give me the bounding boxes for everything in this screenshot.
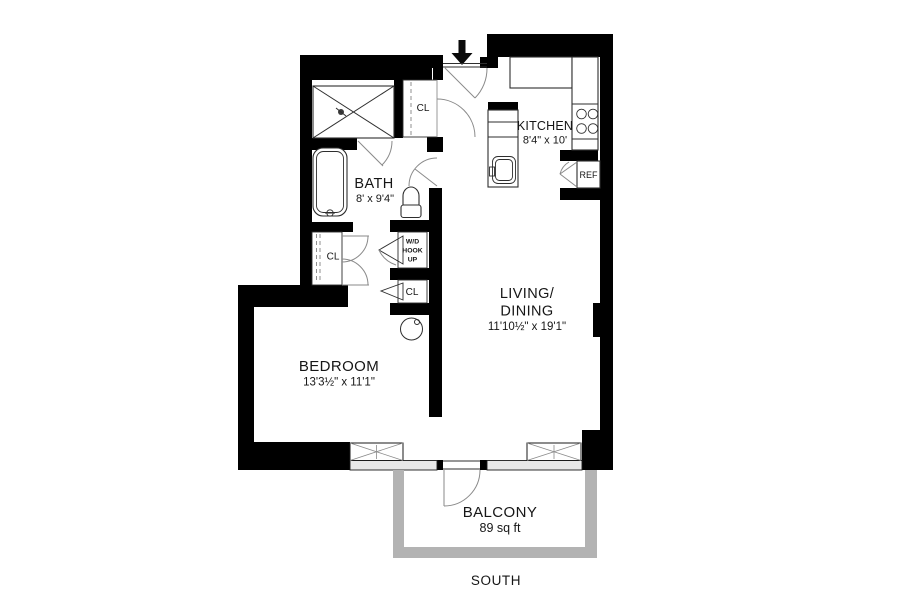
closet-french-door-swing-arc bbox=[342, 236, 368, 262]
balcony: BALCONY 89 sq ft bbox=[393, 461, 597, 558]
wall-ref-top bbox=[560, 150, 598, 161]
balcony-rail-right bbox=[585, 470, 597, 558]
kitchen-dims: 8'4" x 10' bbox=[523, 135, 567, 147]
wall-shower-closet-divider bbox=[394, 78, 403, 138]
entry-closet-door-swing-arc bbox=[437, 99, 475, 137]
compass-direction-label: SOUTH bbox=[471, 573, 521, 588]
entry-closet: CL bbox=[403, 80, 475, 137]
hall-closet-label: CL bbox=[406, 287, 419, 298]
bath-label: BATH bbox=[354, 176, 393, 192]
balcony-rail-left bbox=[393, 470, 404, 558]
wd-label-line2: HOOK bbox=[402, 248, 422, 255]
wall-cl-bottom bbox=[390, 303, 440, 315]
wall-corner-bottom-right bbox=[582, 430, 613, 470]
wall-island-cap bbox=[488, 102, 518, 110]
living-label-line2: DINING bbox=[500, 304, 553, 320]
wd-door-swing-arc bbox=[379, 250, 396, 265]
kitchen-label: KITCHEN bbox=[517, 119, 573, 133]
wall-balcony-door-left-jamb bbox=[437, 460, 443, 470]
balcony-rail-bottom bbox=[393, 547, 597, 558]
wall-pilaster bbox=[593, 303, 600, 337]
shower-door-leaf bbox=[358, 141, 383, 166]
entry-door-leaf bbox=[445, 68, 475, 98]
bath-dims: 8' x 9'4" bbox=[356, 193, 394, 205]
south-windows bbox=[350, 443, 582, 470]
wall-bedroom-top bbox=[238, 285, 348, 307]
wall-bedroom-bottom bbox=[238, 442, 350, 470]
wall-entry-right-jamb bbox=[480, 57, 498, 68]
closet-french-door-swing-arc bbox=[342, 259, 368, 285]
refrigerator-label: REF bbox=[580, 170, 599, 180]
column-pipe-detail bbox=[415, 320, 420, 325]
living-label-line1: LIVING/ bbox=[500, 286, 555, 302]
balcony-area: 89 sq ft bbox=[480, 521, 522, 535]
entry-closet-label: CL bbox=[417, 103, 430, 114]
wall-living-top bbox=[487, 34, 613, 57]
wall-vestibule-chunk bbox=[427, 137, 443, 152]
balcony-door-swing-arc bbox=[444, 470, 480, 506]
walls bbox=[238, 34, 613, 470]
utility-closets: W/D HOOK UP CL bbox=[379, 232, 427, 340]
bedroom-dims: 13'3½" x 11'1" bbox=[303, 377, 375, 389]
bathtub bbox=[313, 148, 347, 216]
bath-door-leaf bbox=[415, 169, 437, 186]
entry bbox=[443, 40, 487, 98]
wall-wd-cl-divider bbox=[390, 268, 440, 280]
window-sill-band bbox=[350, 461, 437, 471]
wall-bath-bottom bbox=[312, 222, 353, 232]
entry-arrow-shaft bbox=[459, 40, 466, 53]
wall-bath-top bbox=[300, 55, 443, 68]
hall-closet-bifold-door bbox=[381, 283, 403, 300]
bedroom-closet-label: CL bbox=[327, 252, 340, 263]
wall-ref-bottom bbox=[560, 188, 613, 200]
refrigerator-door-leaf bbox=[560, 174, 577, 187]
toilet-tank bbox=[401, 205, 421, 218]
wall-left-upper bbox=[300, 55, 312, 285]
wd-label-line3: UP bbox=[408, 257, 418, 264]
wd-label-line1: W/D bbox=[406, 239, 419, 246]
bedroom-label: BEDROOM bbox=[299, 358, 379, 375]
entry-door-swing-arc bbox=[475, 68, 487, 98]
wd-bifold-door bbox=[379, 236, 403, 264]
kitchen-counter-top bbox=[510, 57, 572, 88]
wall-wd-top bbox=[390, 220, 440, 232]
wall-balcony-door-right-jamb bbox=[480, 460, 487, 470]
bath-door-swing-arc bbox=[409, 158, 437, 186]
floor-plan-page: BATH 8' x 9'4" CL REF KITCHEN bbox=[0, 0, 900, 600]
wall-bath-top-thick bbox=[300, 68, 432, 80]
living-dims: 11'10½" x 19'1" bbox=[488, 321, 566, 333]
balcony-label: BALCONY bbox=[463, 504, 538, 521]
window-sill-band bbox=[487, 461, 582, 471]
floor-plan: BATH 8' x 9'4" CL REF KITCHEN bbox=[0, 0, 900, 600]
shower-door-swing-arc bbox=[382, 141, 392, 165]
kitchen: REF KITCHEN 8'4" x 10' bbox=[488, 57, 600, 188]
wall-entry-left-jamb bbox=[433, 68, 443, 80]
toilet-bowl bbox=[403, 187, 419, 206]
wall-right bbox=[600, 34, 613, 430]
bedroom-closet: CL bbox=[312, 232, 369, 285]
